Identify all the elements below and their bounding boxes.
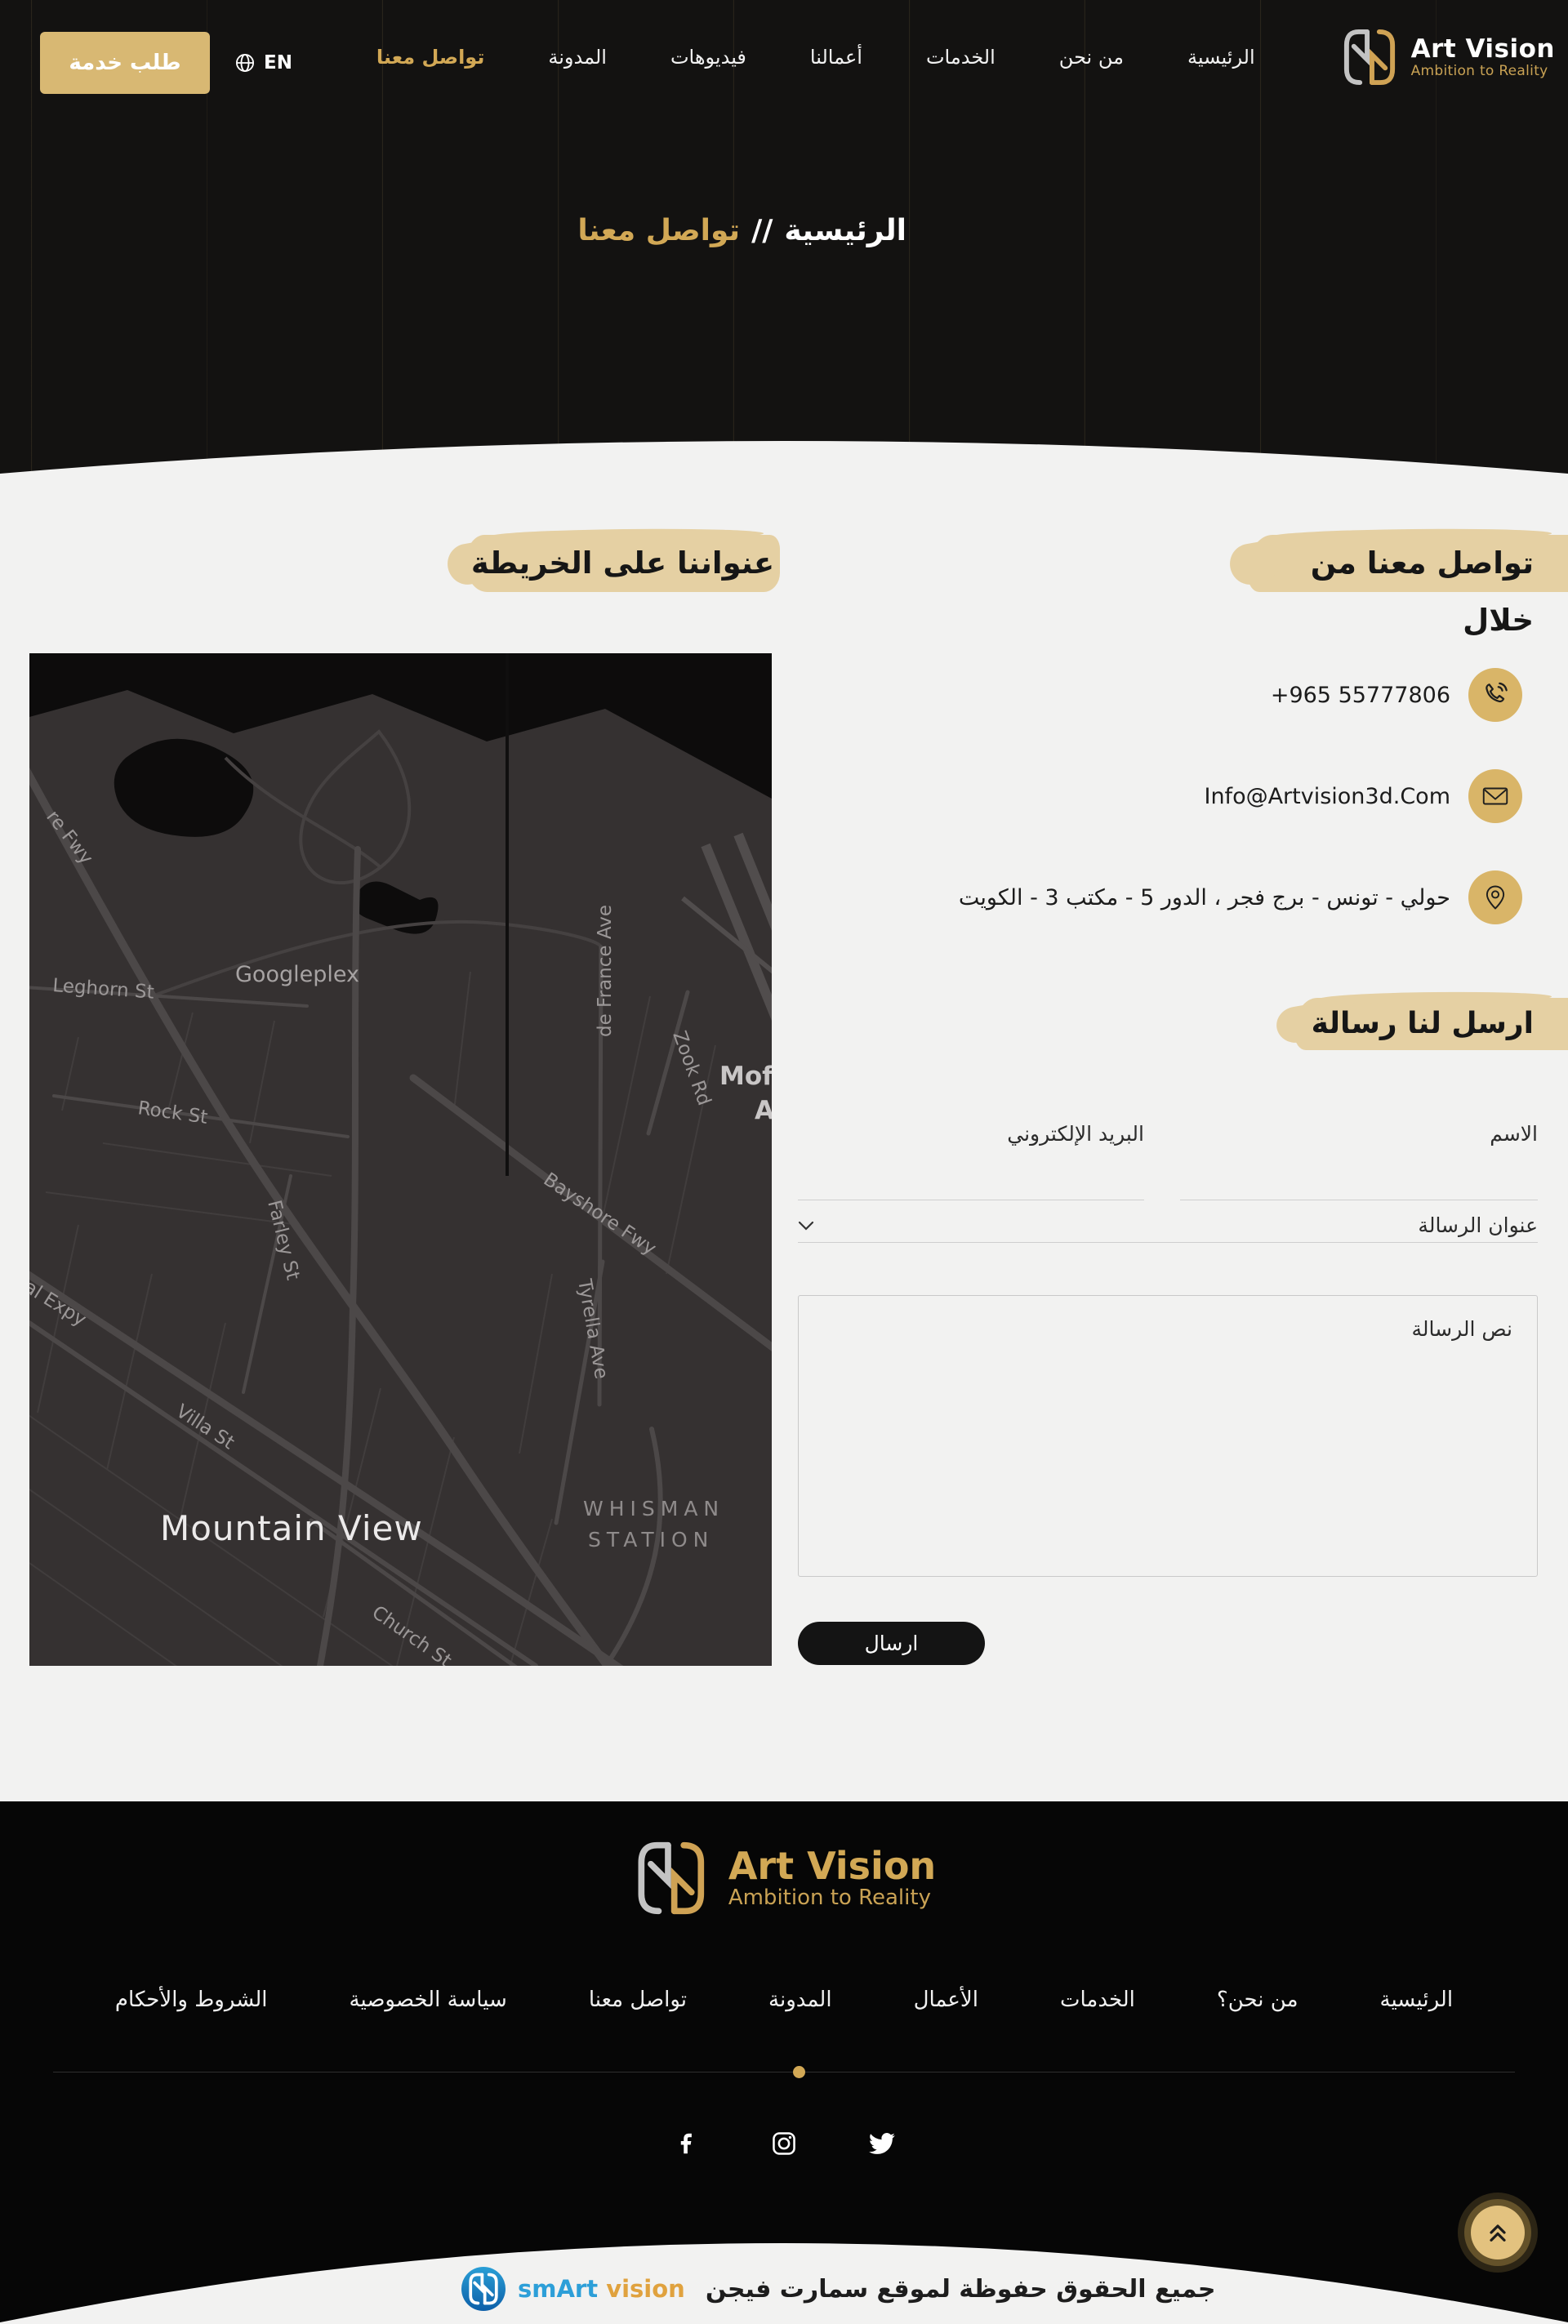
map-label-city: Mountain View [160, 1508, 423, 1548]
breadcrumb-root[interactable]: الرئيسية [784, 214, 906, 247]
brand-name: Art Vision [1411, 35, 1555, 63]
nav-contact[interactable]: تواصل معنا [376, 46, 484, 69]
contact-address-row: حولي - تونس - برج فجر ، الدور 5 - مكتب 3… [959, 870, 1522, 924]
email-icon [1468, 769, 1522, 823]
brand-logo[interactable]: Art Vision Ambition to Reality [1339, 25, 1555, 89]
contact-info-list: +965 55777806 Info@Artvision3d.Com حولي … [959, 668, 1522, 924]
scroll-to-top-button[interactable] [1471, 2206, 1525, 2259]
contact-page: Art Vision Ambition to Reality الرئيسية … [0, 0, 1568, 2324]
email-field-wrap [798, 1094, 1144, 1200]
language-label: EN [264, 52, 292, 73]
brand-tagline: Ambition to Reality [1411, 63, 1555, 79]
nav-services[interactable]: الخدمات [926, 46, 996, 69]
footer-brand-tagline: Ambition to Reality [728, 1885, 936, 1910]
copyright-text: جميع الحقوق حفوظة لموقع سمارت فيجن [706, 2275, 1216, 2304]
nav-about[interactable]: من نحن [1059, 46, 1124, 69]
phone-icon [1468, 668, 1522, 722]
footer-link-terms[interactable]: الشروط والأحكام [115, 1988, 268, 2012]
globe-icon [234, 52, 256, 73]
nav-works[interactable]: أعمالنا [810, 46, 862, 69]
hero-header: Art Vision Ambition to Reality الرئيسية … [0, 0, 1568, 506]
footer-brand-name: Art Vision [728, 1846, 936, 1885]
breadcrumb-separator: // [751, 214, 773, 247]
contact-heading: تواصل معنا من خلال [1248, 535, 1568, 649]
footer-logo-icon [632, 1837, 710, 1919]
language-switcher[interactable]: EN [234, 52, 292, 73]
contact-heading-brush: تواصل معنا من خلال [1248, 535, 1568, 592]
contact-phone: +965 55777806 [1271, 683, 1450, 708]
nav-blog[interactable]: المدونة [548, 46, 607, 69]
footer-link-blog[interactable]: المدونة [768, 1988, 832, 2012]
double-chevron-up-icon [1485, 2219, 1511, 2246]
contact-phone-row[interactable]: +965 55777806 [959, 668, 1522, 722]
footer-divider-dot [793, 2066, 805, 2078]
email-input[interactable] [798, 1094, 1144, 1146]
send-heading-brush: ارسل لنا رسالة [1294, 998, 1568, 1050]
location-map[interactable]: re Fwy Leghorn St Googleplex Rock St de … [29, 653, 772, 1666]
social-links [0, 2128, 1568, 2159]
footer-divider [53, 2072, 1515, 2072]
art-vision-logo-icon [1339, 25, 1400, 89]
nav-actions: EN طلب خدمة [40, 32, 292, 94]
footer-link-home[interactable]: الرئيسية [1380, 1988, 1454, 2012]
name-input[interactable] [1180, 1094, 1538, 1146]
footer-link-about[interactable]: من نحن؟ [1217, 1988, 1298, 2012]
form-row-name-email [798, 1094, 1538, 1200]
instagram-icon[interactable] [768, 2128, 800, 2159]
map-label-whisman: WHISMAN [583, 1497, 724, 1520]
footer-link-works[interactable]: الأعمال [914, 1988, 978, 2012]
map-heading: عنواننا على الخريطة [465, 535, 780, 592]
subject-select[interactable]: عنوان الرسالة [798, 1200, 1538, 1243]
footer-link-privacy[interactable]: سياسة الخصوصية [350, 1988, 507, 2012]
form-actions: ارسال [798, 1622, 1538, 1665]
map-label-moffett2: A [755, 1096, 772, 1125]
send-message-heading: ارسل لنا رسالة [1294, 998, 1568, 1050]
subject-select-label: عنوان الرسالة [1418, 1213, 1538, 1237]
credit-smart-text: smArt [518, 2275, 598, 2303]
map-label-defrance: de France Ave [595, 905, 616, 1037]
send-button[interactable]: ارسال [798, 1622, 985, 1665]
chevron-down-icon [798, 1221, 814, 1231]
twitter-icon[interactable] [866, 2128, 898, 2159]
copyright-bar: smArt vision جميع الحقوق حفوظة لموقع سما… [461, 2267, 1216, 2311]
brand-text: Art Vision Ambition to Reality [1411, 35, 1555, 79]
nav-videos[interactable]: فيديوهات [670, 46, 746, 69]
nav-home[interactable]: الرئيسية [1187, 46, 1255, 69]
contact-address: حولي - تونس - برج فجر ، الدور 5 - مكتب 3… [959, 885, 1450, 910]
map-canvas: re Fwy Leghorn St Googleplex Rock St de … [29, 653, 772, 1666]
contact-form: عنوان الرسالة ارسال [798, 1094, 1538, 1665]
footer-link-services[interactable]: الخدمات [1060, 1988, 1135, 2012]
footer-logo[interactable]: Art Vision Ambition to Reality [632, 1837, 936, 1919]
smart-vision-icon[interactable] [461, 2267, 506, 2311]
contact-email: Info@Artvision3d.Com [1204, 784, 1450, 809]
map-label-moffett: Moffe [719, 1062, 772, 1091]
contact-email-row[interactable]: Info@Artvision3d.Com [959, 769, 1522, 823]
name-field-wrap [1180, 1094, 1538, 1200]
credit-vision-text: vision [606, 2275, 685, 2303]
location-pin-icon [1468, 870, 1522, 924]
main-menu: الرئيسية من نحن الخدمات أعمالنا فيديوهات… [376, 46, 1255, 69]
hero-bottom-curve [0, 408, 1568, 506]
request-service-button[interactable]: طلب خدمة [40, 32, 210, 94]
footer-link-contact[interactable]: تواصل معنا [589, 1988, 687, 2012]
footer-brand-text: Art Vision Ambition to Reality [728, 1846, 936, 1910]
footer-navigation: الرئيسية من نحن؟ الخدمات الأعمال المدونة… [0, 1988, 1568, 2012]
map-heading-brush: عنواننا على الخريطة [465, 535, 780, 592]
map-label-station: STATION [588, 1528, 714, 1552]
facebook-icon[interactable] [670, 2128, 702, 2159]
smart-vision-credit[interactable]: smArt vision [518, 2275, 685, 2303]
message-textarea[interactable] [798, 1295, 1538, 1577]
breadcrumb-current: تواصل معنا [577, 214, 740, 247]
map-label-googleplex: Googleplex [235, 962, 359, 987]
top-navigation: Art Vision Ambition to Reality الرئيسية … [0, 0, 1568, 114]
breadcrumb: الرئيسية // تواصل معنا [577, 214, 906, 247]
footer: Art Vision Ambition to Reality الرئيسية … [0, 1801, 1568, 2324]
